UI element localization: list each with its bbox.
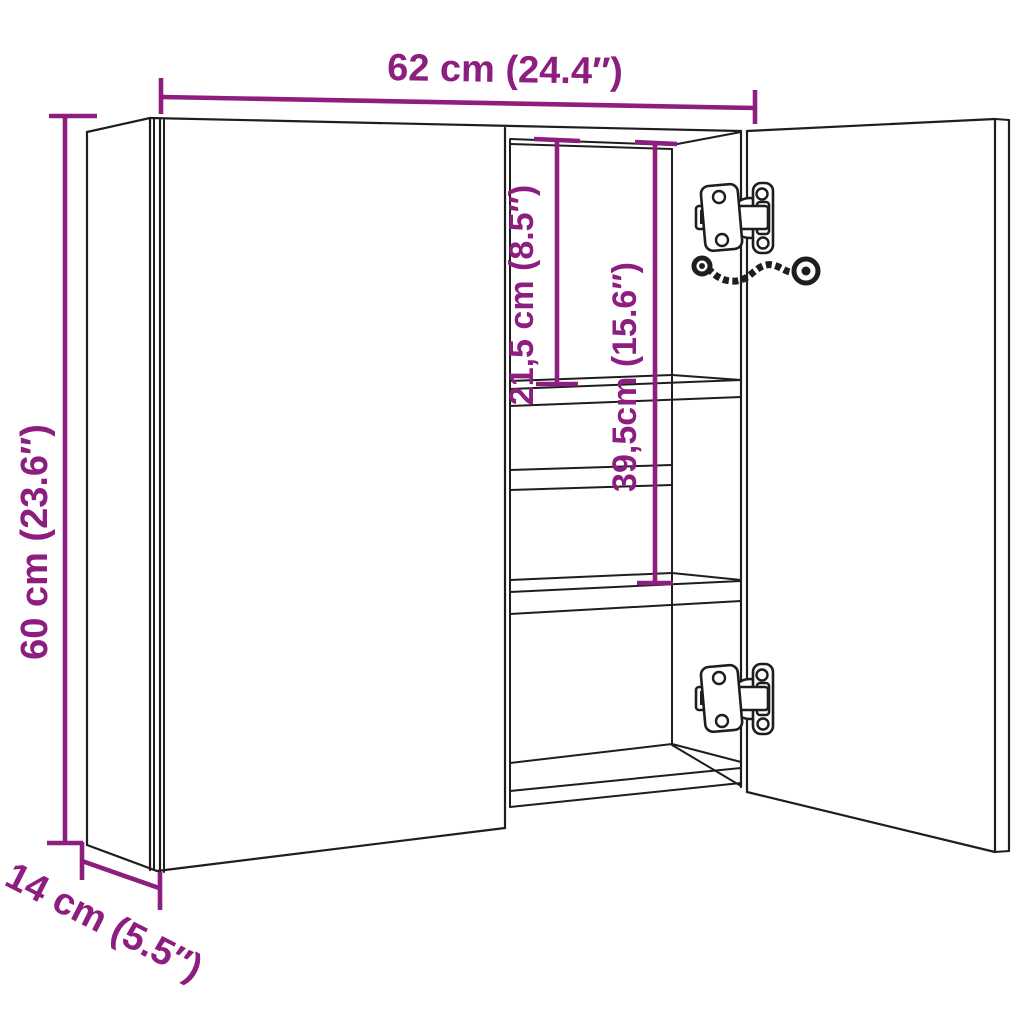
width-dimension: 62 cm (24.4″) [161, 47, 755, 124]
middle-compartment-dimension-label: 39,5cm (15.6″) [606, 262, 644, 492]
depth-dimension-label: 14 cm (5.5″) [0, 855, 209, 990]
depth-dimension: 14 cm (5.5″) [0, 842, 209, 990]
width-dimension-label: 62 cm (24.4″) [387, 47, 623, 93]
height-dimension-label: 60 cm (23.6″) [14, 424, 56, 660]
height-dimension: 60 cm (23.6″) [14, 116, 97, 843]
cabinet-drawing: 62 cm (24.4″) 60 cm (23.6″) 14 cm (5.5″)… [0, 0, 1024, 1024]
top-compartment-dimension: 21,5 cm (8.5″) [503, 139, 580, 405]
cabinet-body [87, 118, 741, 872]
closed-left-door [150, 118, 741, 872]
shelf-back-edge [510, 465, 672, 490]
left-side-panel [87, 118, 157, 871]
power-cable [694, 258, 818, 283]
concealed-hinge-icon [696, 183, 773, 253]
bottom-panel [510, 744, 741, 807]
middle-compartment-dimension: 39,5cm (15.6″) [606, 142, 677, 583]
bottom-hinge [696, 664, 773, 734]
open-right-door [747, 119, 1009, 852]
dimension-diagram: 62 cm (24.4″) 60 cm (23.6″) 14 cm (5.5″)… [0, 0, 1024, 1024]
top-compartment-dimension-label: 21,5 cm (8.5″) [503, 185, 541, 405]
lower-shelf [510, 573, 741, 614]
